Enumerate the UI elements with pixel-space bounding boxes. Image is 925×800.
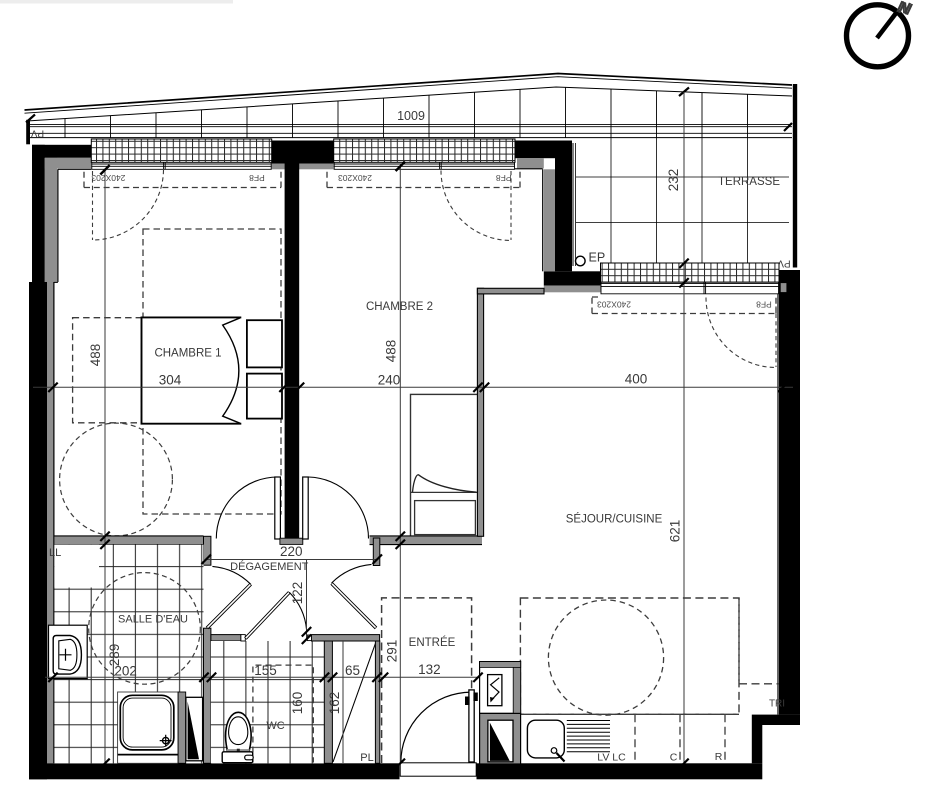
svg-text:291: 291 [384,640,399,663]
svg-text:488: 488 [88,344,103,367]
svg-text:SÉJOUR/CUISINE: SÉJOUR/CUISINE [566,513,663,526]
svg-text:PF8: PF8 [249,173,265,183]
svg-text:122: 122 [290,582,305,605]
svg-text:WC: WC [266,720,284,732]
svg-text:162: 162 [327,692,342,715]
svg-text:R: R [715,751,723,763]
svg-text:240X203: 240X203 [597,300,631,310]
svg-text:232: 232 [666,169,681,192]
svg-text:EP: EP [589,251,606,265]
svg-text:PV: PV [31,128,45,139]
svg-text:488: 488 [384,340,399,363]
svg-text:621: 621 [668,520,683,543]
svg-text:TRI: TRI [769,699,785,710]
svg-text:240X203: 240X203 [338,173,372,183]
svg-text:TERRASSE: TERRASSE [718,176,780,188]
svg-text:400: 400 [625,372,648,387]
svg-text:155: 155 [254,663,277,678]
svg-text:220: 220 [280,544,303,559]
svg-text:240: 240 [378,373,401,388]
svg-text:PF8: PF8 [756,300,772,310]
svg-text:DÉGAGEMENT: DÉGAGEMENT [230,560,309,573]
svg-text:PL: PL [360,752,373,764]
svg-text:160: 160 [290,692,305,715]
svg-text:ENTRÉE: ENTRÉE [409,636,456,649]
svg-text:65: 65 [345,663,360,678]
svg-text:PF8: PF8 [496,173,512,183]
svg-text:CHAMBRE 2: CHAMBRE 2 [366,301,433,313]
svg-text:202: 202 [114,663,137,678]
svg-text:C: C [670,752,678,764]
svg-text:LV LC: LV LC [597,752,626,764]
svg-text:240X203: 240X203 [91,173,125,183]
svg-text:SALLE D'EAU: SALLE D'EAU [118,613,188,625]
svg-text:132: 132 [418,662,441,677]
svg-text:304: 304 [159,373,182,388]
svg-text:CHAMBRE 1: CHAMBRE 1 [154,348,221,360]
svg-text:LL: LL [49,547,61,559]
svg-text:1009: 1009 [397,109,425,123]
